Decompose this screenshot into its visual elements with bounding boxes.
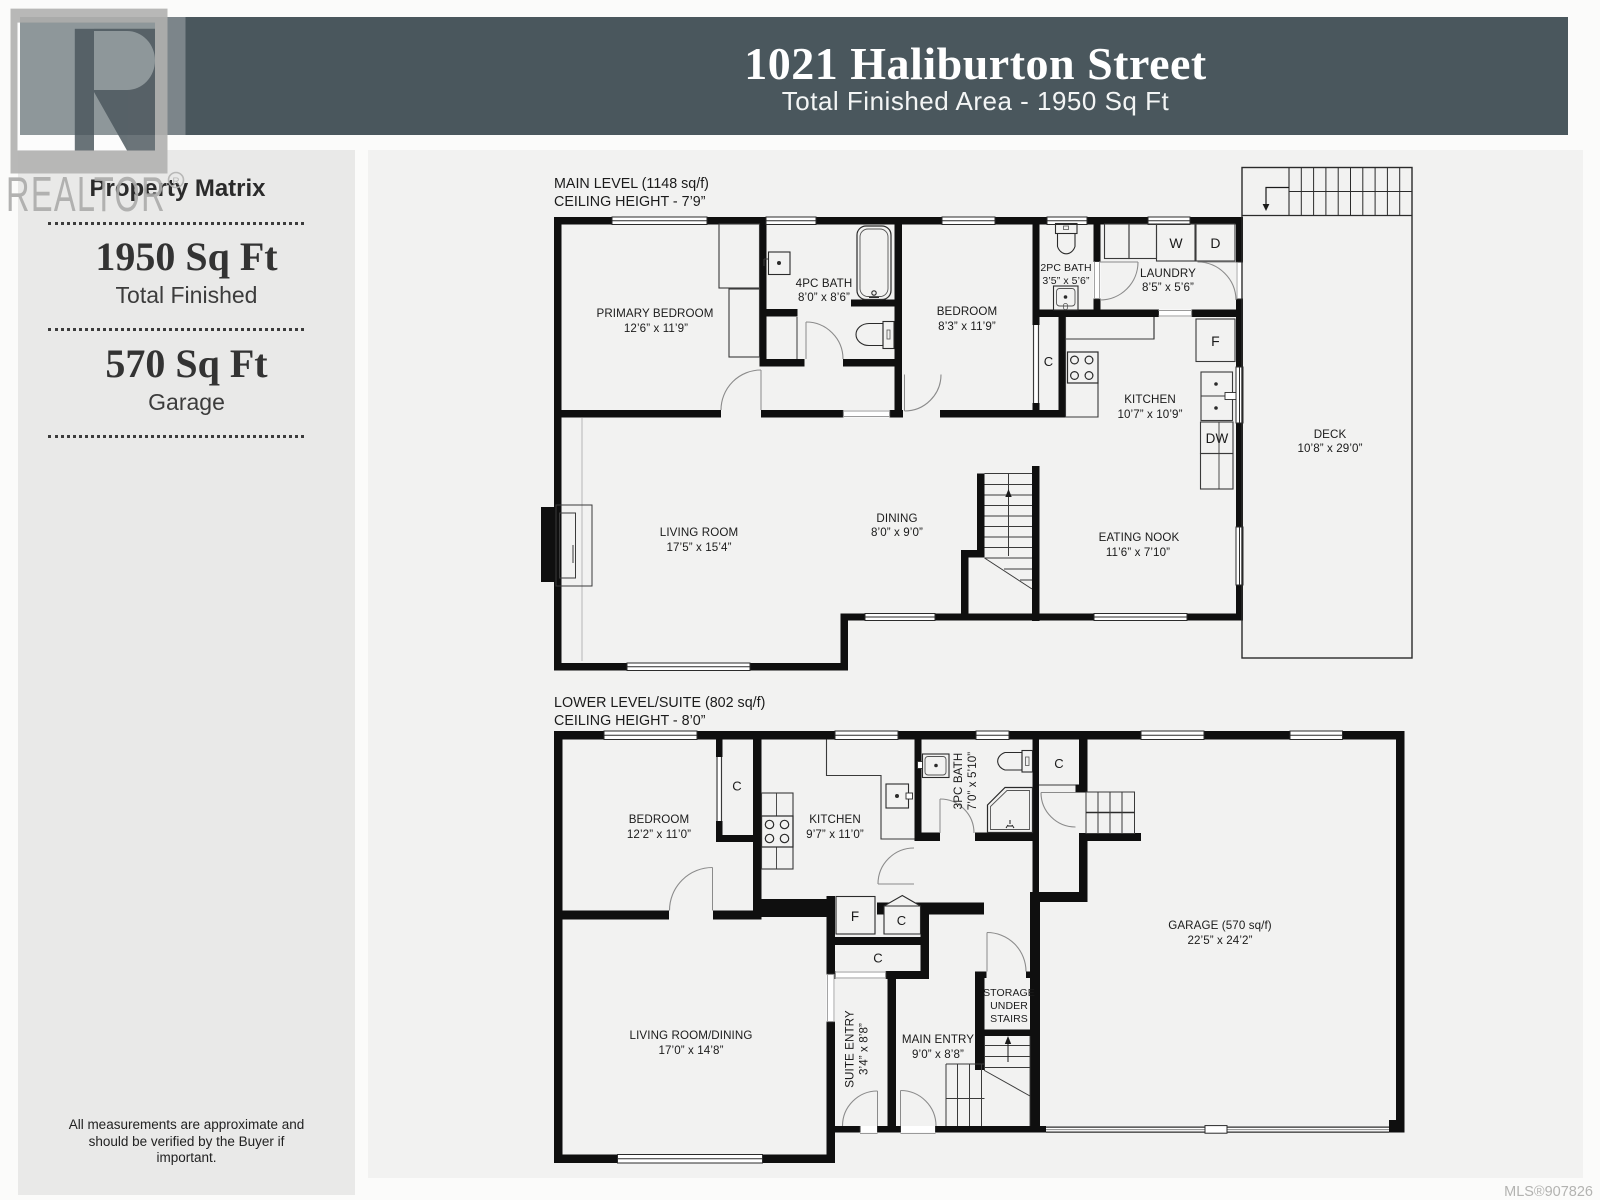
svg-text:SUITE ENTRY: SUITE ENTRY	[844, 1010, 857, 1088]
svg-text:EATING NOOK: EATING NOOK	[1099, 531, 1180, 544]
svg-text:F: F	[1211, 333, 1220, 349]
svg-text:W: W	[1169, 235, 1183, 251]
svg-text:8’5” x 5’6”: 8’5” x 5’6”	[1142, 281, 1194, 294]
svg-text:LIVING ROOM: LIVING ROOM	[660, 526, 738, 539]
svg-text:3’4” x 8’8”: 3’4” x 8’8”	[858, 1023, 871, 1075]
svg-text:C: C	[897, 913, 906, 928]
svg-text:LIVING ROOM/DINING: LIVING ROOM/DINING	[630, 1029, 753, 1042]
svg-text:8’3” x 11’9”: 8’3” x 11’9”	[938, 320, 996, 333]
svg-text:2PC BATH: 2PC BATH	[1040, 262, 1091, 274]
svg-text:BEDROOM: BEDROOM	[629, 813, 690, 826]
svg-text:LOWER LEVEL/SUITE (802 sq/f): LOWER LEVEL/SUITE (802 sq/f)	[554, 695, 765, 711]
svg-text:BEDROOM: BEDROOM	[937, 305, 998, 318]
svg-text:12’6” x 11’9”: 12’6” x 11’9”	[624, 322, 688, 335]
svg-text:DECK: DECK	[1314, 428, 1347, 441]
svg-text:10’7” x 10’9”: 10’7” x 10’9”	[1117, 408, 1182, 421]
svg-text:10’8” x 29’0”: 10’8” x 29’0”	[1297, 442, 1362, 455]
svg-text:C: C	[873, 951, 883, 966]
svg-text:CEILING HEIGHT - 7’9”: CEILING HEIGHT - 7’9”	[554, 194, 706, 210]
svg-text:DW: DW	[1206, 431, 1229, 446]
svg-text:R: R	[172, 177, 179, 188]
svg-text:CEILING HEIGHT - 8’0”: CEILING HEIGHT - 8’0”	[554, 713, 706, 729]
svg-text:8’0” x 9’0”: 8’0” x 9’0”	[871, 526, 923, 539]
svg-text:11’6” x 7’10”: 11’6” x 7’10”	[1106, 546, 1170, 559]
svg-text:7’0” x 5’10”: 7’0” x 5’10”	[966, 752, 979, 811]
svg-text:STORAGE: STORAGE	[983, 987, 1035, 999]
svg-text:F: F	[851, 909, 859, 924]
svg-text:GARAGE (570 sq/f): GARAGE (570 sq/f)	[1168, 919, 1272, 932]
svg-text:17’0” x 14’8”: 17’0” x 14’8”	[658, 1044, 723, 1057]
svg-text:REALTOR: REALTOR	[6, 168, 166, 222]
svg-text:PRIMARY BEDROOM: PRIMARY BEDROOM	[596, 307, 713, 320]
svg-text:22’5” x 24’2”: 22’5” x 24’2”	[1187, 934, 1252, 947]
svg-text:17’5” x 15’4”: 17’5” x 15’4”	[666, 541, 731, 554]
svg-text:9’7” x 11’0”: 9’7” x 11’0”	[806, 828, 864, 841]
svg-text:D: D	[1210, 235, 1220, 251]
svg-text:STAIRS: STAIRS	[990, 1013, 1028, 1025]
svg-text:MAIN ENTRY: MAIN ENTRY	[902, 1033, 974, 1046]
svg-text:DINING: DINING	[876, 512, 917, 525]
svg-text:3PC BATH: 3PC BATH	[952, 753, 965, 810]
svg-text:UNDER: UNDER	[990, 1000, 1028, 1012]
svg-text:4PC BATH: 4PC BATH	[796, 277, 853, 290]
svg-text:KITCHEN: KITCHEN	[809, 813, 861, 826]
svg-text:9’0” x 8’8”: 9’0” x 8’8”	[912, 1048, 964, 1061]
svg-text:KITCHEN: KITCHEN	[1124, 393, 1176, 406]
svg-text:MAIN LEVEL (1148 sq/f): MAIN LEVEL (1148 sq/f)	[554, 176, 709, 192]
svg-text:C: C	[732, 779, 742, 794]
svg-text:3’5” x 5’6”: 3’5” x 5’6”	[1042, 275, 1090, 287]
svg-text:LAUNDRY: LAUNDRY	[1140, 267, 1196, 280]
svg-text:C: C	[1044, 354, 1054, 369]
svg-text:C: C	[1054, 756, 1064, 771]
svg-text:8’0” x 8’6”: 8’0” x 8’6”	[798, 291, 850, 304]
svg-text:12’2” x 11’0”: 12’2” x 11’0”	[627, 828, 691, 841]
